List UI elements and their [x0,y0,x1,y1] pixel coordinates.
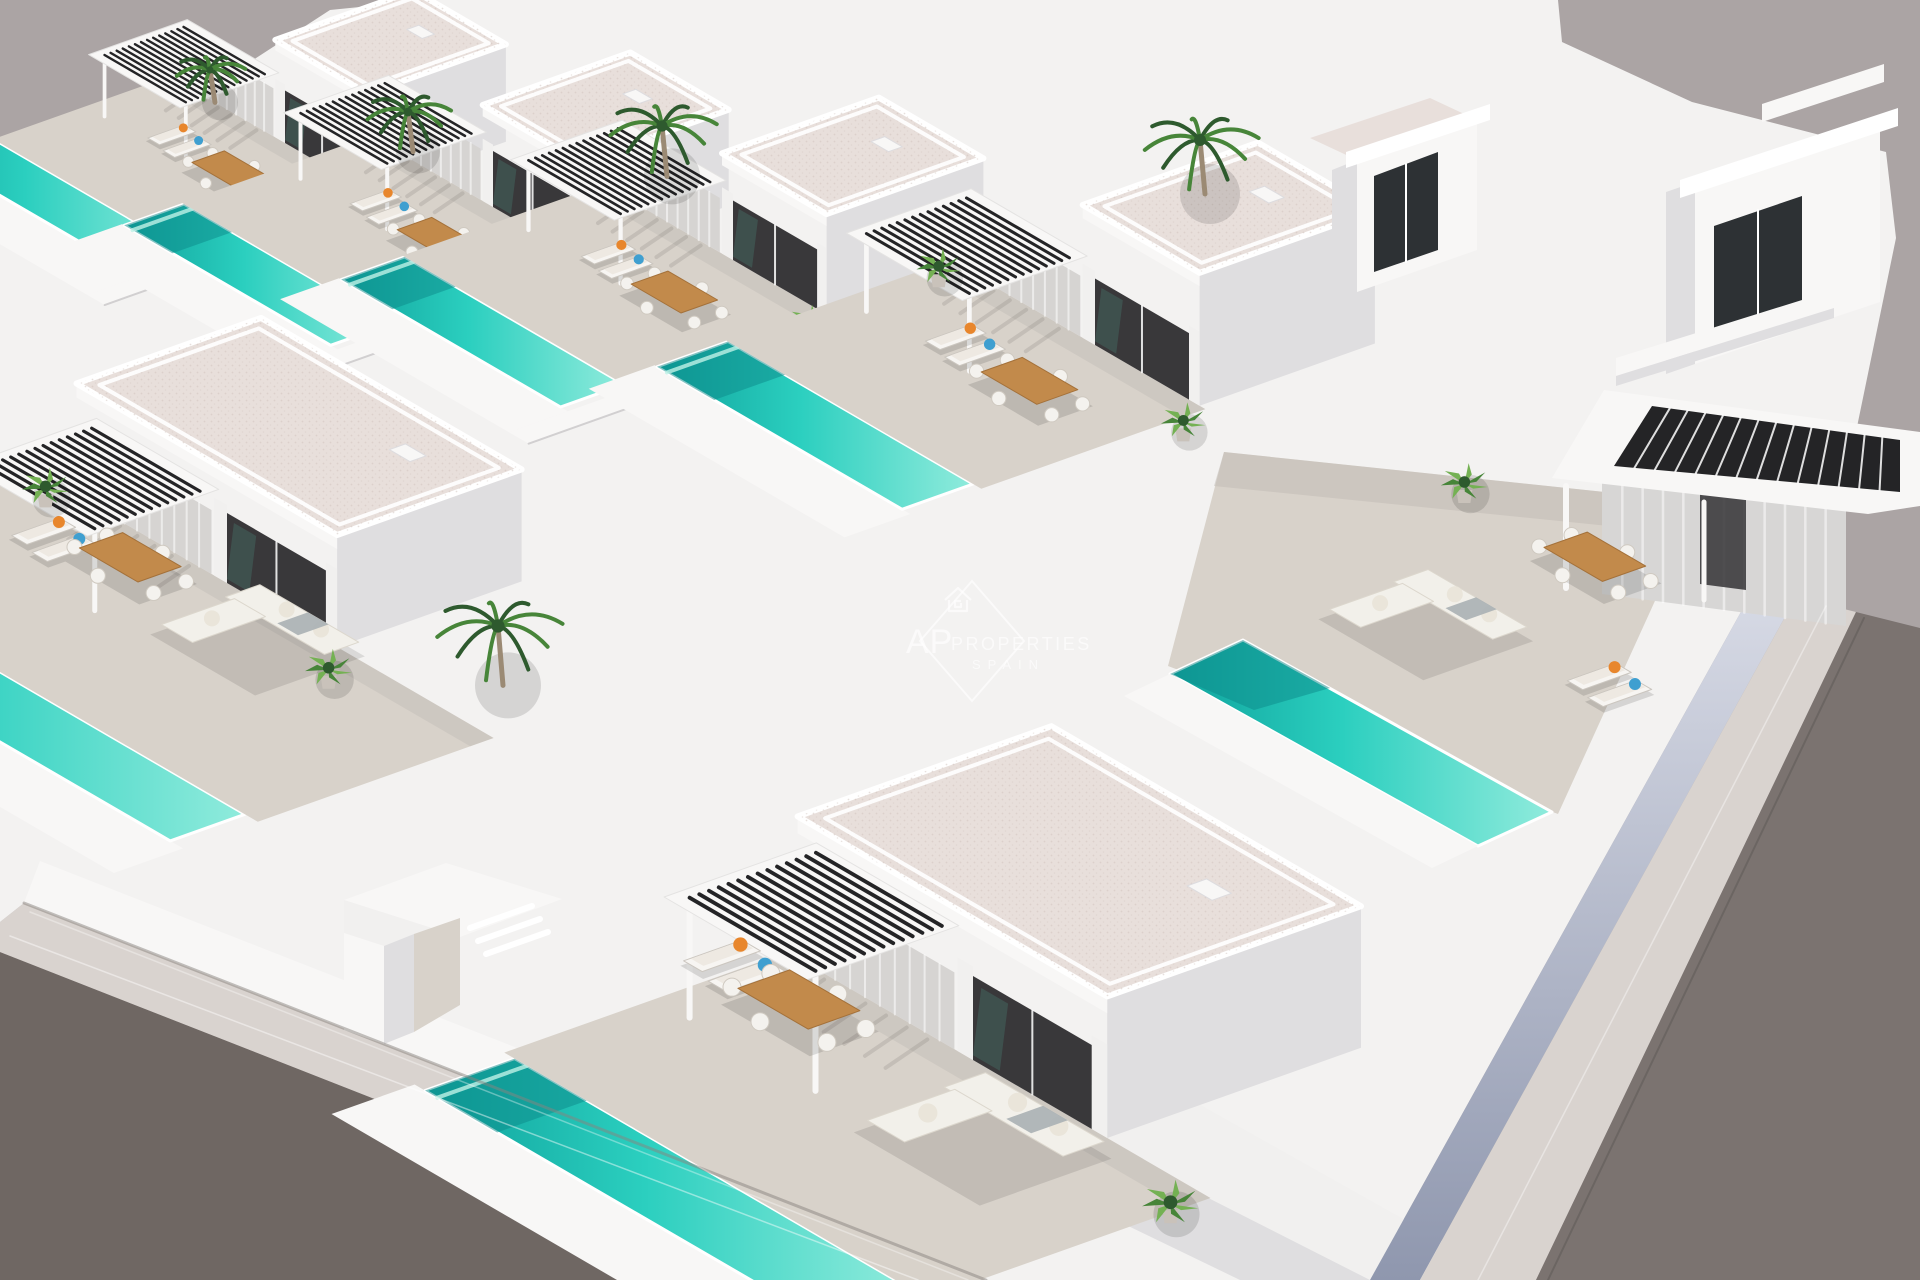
watermark-monogram: AP [906,623,953,661]
lounger-cushion [1609,661,1621,673]
dining-chair [67,540,82,555]
palm-crown [656,120,667,131]
lounger-cushion [965,322,976,333]
plant-core [323,662,335,674]
facade-wall-right [1189,326,1200,406]
watermark-country: SPAIN [972,657,1045,672]
dining-chair [715,306,728,319]
plant-core [933,261,944,272]
entry-pillar-side [384,934,414,1044]
entry-pillar [344,933,384,1044]
dining-chair [969,364,983,378]
palm-shadow [202,84,238,120]
plant-core [1164,1195,1178,1209]
dining-chair [1075,397,1089,411]
palm-shadow [475,652,541,718]
lounger-cushion [616,240,626,250]
watermark-brand-name: PROPERTIES [951,634,1092,654]
lounger-cushion [733,937,747,951]
palm-shadow [1180,164,1240,224]
sofa-cushion [918,1103,937,1122]
facade-wall-left [958,957,974,1060]
tower-small-side [1332,160,1357,302]
lounger-cushion [1629,678,1641,690]
villa-development-render: AP PROPERTIES SPAIN [0,0,1920,1280]
plant-core [40,481,52,493]
palm-crown [206,66,213,73]
dining-chair [641,301,654,314]
dining-chair [179,574,194,589]
dining-chair [688,316,701,329]
dining-chair [621,277,634,290]
palm-crown [404,108,413,117]
dining-chair [818,1033,836,1051]
dining-chair [857,1020,875,1038]
dining-chair [90,568,105,583]
dining-chair [200,178,211,189]
dining-chair [992,391,1006,405]
lounger-cushion [194,136,203,145]
lounger-cushion [399,202,409,212]
dining-chair [1532,539,1547,554]
sofa-cushion [204,610,220,626]
lounger-cushion [634,254,644,264]
dining-chair [1643,574,1658,589]
facade-wall-left [1083,264,1095,345]
render-viewport: AP PROPERTIES SPAIN [0,0,1920,1280]
facade-wall-right [1092,1035,1108,1138]
dining-chair [1555,568,1570,583]
dining-chair [751,1013,769,1031]
sofa-cushion [1372,595,1388,611]
lounger-cushion [984,339,995,350]
facade-wall-left [483,139,493,207]
lounger-cushion [383,188,393,198]
dining-chair [183,156,194,167]
dining-chair [1611,585,1626,600]
facade-wall-left [722,187,733,260]
sofa-cushion [1008,1093,1027,1112]
dining-chair [723,978,741,996]
dining-chair [146,586,161,601]
plant-core [1178,415,1189,426]
sofa-cushion [1447,586,1463,602]
sofa-cushion [279,601,295,617]
facade-wall-left [214,498,227,584]
dining-chair [387,223,399,235]
plant-core [1459,476,1471,488]
lounger-cushion [179,123,188,132]
lounger-cushion [53,516,65,528]
palm-crown [1194,134,1206,146]
dining-chair [1045,408,1059,422]
palm-crown [491,619,504,632]
facade-wall-left [275,79,285,143]
facade-wall-right [817,243,827,315]
